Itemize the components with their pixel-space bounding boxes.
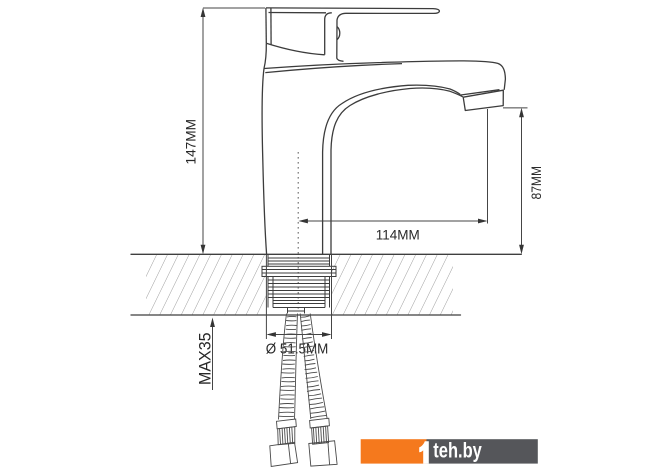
svg-text:114MM: 114MM [376,227,420,243]
svg-text:147MM: 147MM [183,119,199,165]
svg-text:87MM: 87MM [528,166,544,200]
svg-text:Ø 51.5MM: Ø 51.5MM [266,341,329,357]
svg-text:teh.by: teh.by [433,440,482,463]
svg-text:MAX35: MAX35 [197,333,215,386]
